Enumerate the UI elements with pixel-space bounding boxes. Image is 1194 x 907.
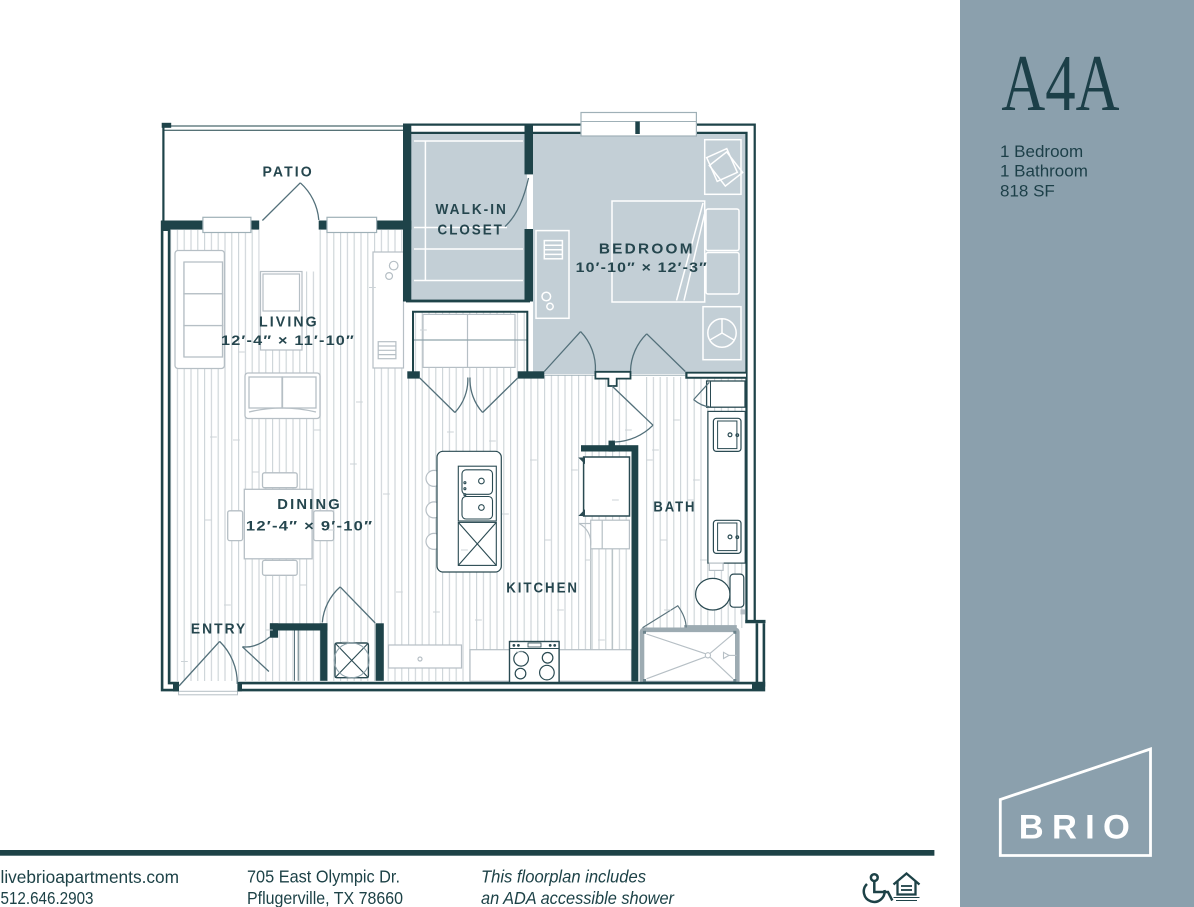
svg-text:12′-4″ × 9′-10″: 12′-4″ × 9′-10″	[246, 518, 373, 533]
svg-text:Pflugerville, TX 78660: Pflugerville, TX 78660	[247, 888, 403, 907]
svg-text:PATIO: PATIO	[263, 164, 314, 181]
svg-text:WALK-IN: WALK-IN	[436, 201, 508, 218]
svg-text:705 East Olympic Dr.: 705 East Olympic Dr.	[247, 867, 400, 887]
svg-text:1 Bathroom: 1 Bathroom	[1000, 162, 1088, 181]
svg-text:10′-10″ × 12′-3″: 10′-10″ × 12′-3″	[576, 260, 708, 275]
svg-text:BATH: BATH	[653, 498, 696, 515]
svg-text:an ADA accessible shower: an ADA accessible shower	[481, 888, 675, 907]
svg-text:LIVING: LIVING	[259, 313, 319, 330]
svg-text:A4A: A4A	[1001, 40, 1119, 128]
svg-text:KITCHEN: KITCHEN	[506, 580, 579, 597]
svg-text:BRIO: BRIO	[1019, 808, 1136, 846]
svg-text:1 Bedroom: 1 Bedroom	[1000, 142, 1083, 161]
svg-text:livebrioapartments.com: livebrioapartments.com	[1, 867, 180, 887]
svg-text:ENTRY: ENTRY	[191, 621, 247, 638]
svg-text:CLOSET: CLOSET	[438, 221, 504, 238]
svg-text:DINING: DINING	[277, 496, 342, 513]
svg-text:BEDROOM: BEDROOM	[599, 240, 695, 257]
svg-text:818 SF: 818 SF	[1000, 181, 1055, 200]
svg-text:512.646.2903: 512.646.2903	[1, 888, 94, 907]
svg-text:This floorplan includes: This floorplan includes	[481, 867, 646, 887]
svg-text:12′-4″ × 11′-10″: 12′-4″ × 11′-10″	[221, 333, 355, 348]
